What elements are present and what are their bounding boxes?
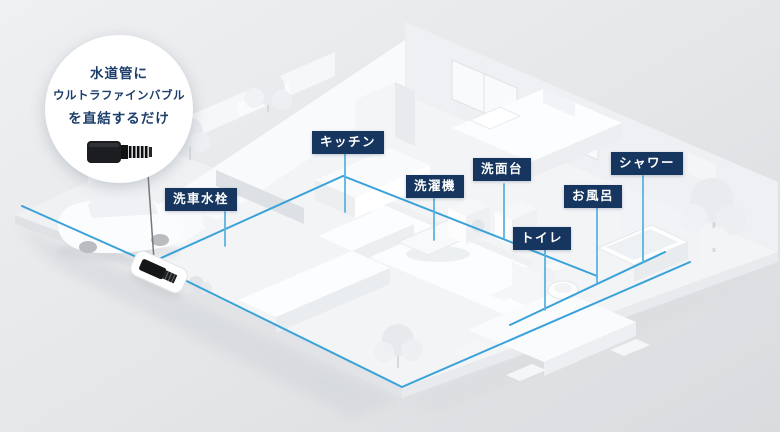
infographic-house-plumbing: 水道管に ウルトラファインバブル を直結するだけ 洗車水栓 キッチン 洗濯機 洗… (0, 0, 780, 432)
label-washbasin: 洗面台 (473, 158, 531, 181)
callout-line-3: を直結するだけ (45, 107, 193, 131)
callout-line-1: 水道管に (45, 62, 193, 86)
label-bath: お風呂 (564, 185, 622, 208)
label-car-wash-faucet: 洗車水栓 (165, 188, 237, 211)
label-washing-machine: 洗濯機 (406, 175, 464, 198)
callout-bubble: 水道管に ウルトラファインバブル を直結するだけ (45, 35, 193, 183)
callout-line-2: ウルトラファインバブル (45, 86, 193, 107)
label-toilet: トイレ (513, 227, 571, 250)
connector-device-icon (83, 136, 155, 168)
label-shower: シャワー (611, 152, 683, 175)
label-kitchen: キッチン (312, 131, 384, 154)
